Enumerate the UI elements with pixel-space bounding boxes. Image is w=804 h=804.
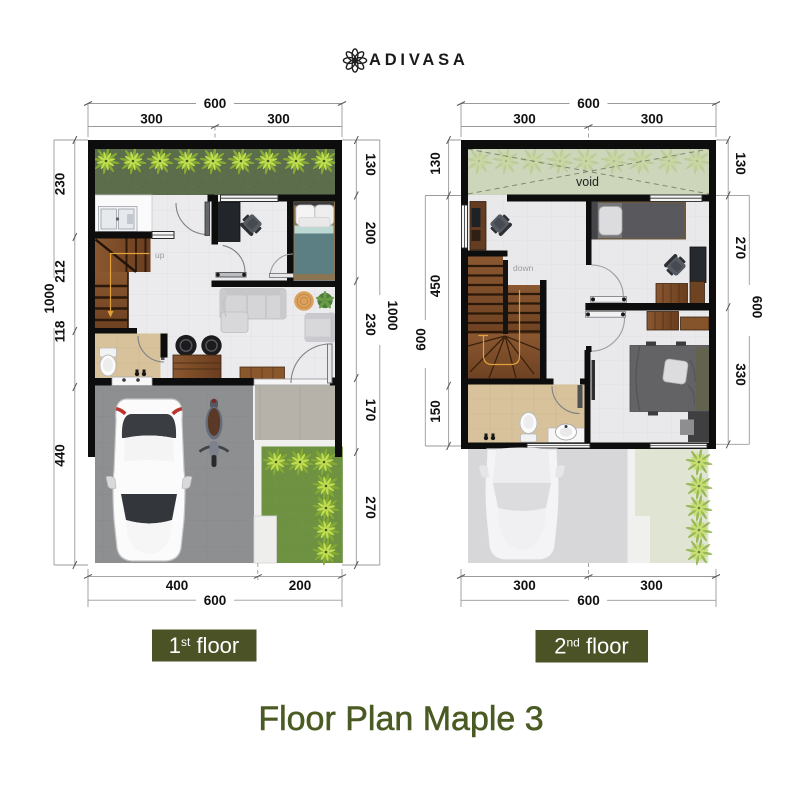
svg-text:Floor Plan Maple 3: Floor Plan Maple 3 — [258, 700, 543, 738]
svg-text:212: 212 — [53, 260, 68, 283]
svg-text:330: 330 — [733, 363, 748, 386]
svg-text:2nd floor: 2nd floor — [554, 634, 629, 659]
svg-text:600: 600 — [577, 96, 600, 111]
svg-text:130: 130 — [428, 152, 443, 175]
svg-text:1000: 1000 — [385, 300, 400, 330]
svg-text:300: 300 — [641, 112, 664, 127]
svg-text:600: 600 — [577, 593, 600, 608]
svg-text:600: 600 — [749, 296, 764, 319]
svg-text:down: down — [513, 263, 534, 273]
svg-text:270: 270 — [733, 237, 748, 260]
svg-text:230: 230 — [363, 313, 378, 336]
svg-text:170: 170 — [363, 399, 378, 422]
svg-text:ADIVASA: ADIVASA — [369, 51, 469, 69]
svg-text:400: 400 — [166, 578, 189, 593]
svg-text:300: 300 — [140, 112, 163, 127]
svg-text:200: 200 — [289, 578, 312, 593]
svg-text:void: void — [576, 175, 599, 189]
svg-text:150: 150 — [428, 400, 443, 423]
svg-text:440: 440 — [53, 444, 68, 467]
svg-text:130: 130 — [363, 153, 378, 176]
svg-text:300: 300 — [267, 112, 290, 127]
svg-text:118: 118 — [53, 320, 68, 342]
svg-text:600: 600 — [204, 96, 227, 111]
svg-text:600: 600 — [204, 593, 227, 608]
svg-text:up: up — [155, 250, 165, 260]
svg-text:300: 300 — [640, 578, 663, 593]
svg-text:200: 200 — [363, 222, 378, 245]
svg-text:450: 450 — [428, 275, 443, 298]
svg-text:600: 600 — [413, 328, 428, 351]
svg-text:300: 300 — [513, 112, 536, 127]
svg-text:1000: 1000 — [42, 283, 57, 313]
svg-text:270: 270 — [363, 496, 378, 519]
svg-text:130: 130 — [733, 152, 748, 175]
svg-text:1st floor: 1st floor — [169, 633, 240, 658]
svg-text:300: 300 — [513, 578, 536, 593]
svg-text:230: 230 — [53, 173, 68, 196]
